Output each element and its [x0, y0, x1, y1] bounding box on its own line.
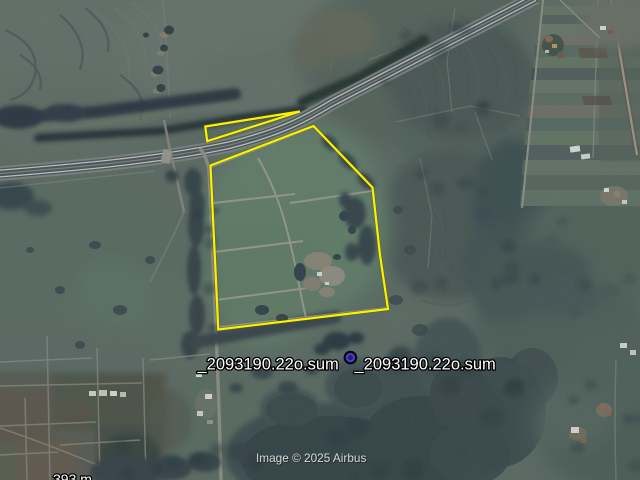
- svg-text:_2093190.22o.sum: _2093190.22o.sum: [354, 356, 496, 374]
- svg-text:393 m: 393 m: [53, 471, 92, 480]
- svg-text:Image © 2025 Airbus: Image © 2025 Airbus: [256, 451, 366, 465]
- svg-text:_2093190.22o.sum: _2093190.22o.sum: [197, 356, 339, 374]
